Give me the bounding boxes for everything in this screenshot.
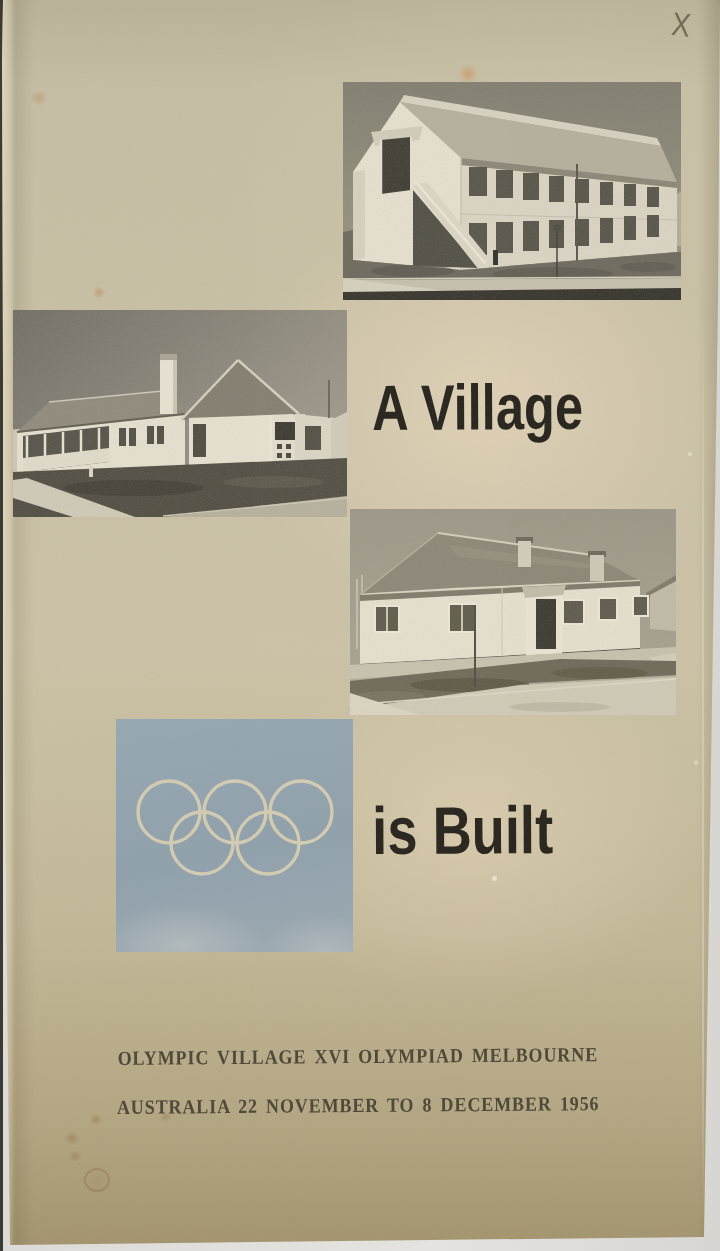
- paper-speck: [688, 452, 692, 456]
- paper-speck: [694, 760, 698, 765]
- paper-speck: [492, 876, 497, 881]
- pencil-x-mark: X: [669, 5, 692, 45]
- imprint-line-2: AUSTRALIA 22 NOVEMBER TO 8 DECEMBER 1956: [36, 1091, 681, 1119]
- photo-grain: [343, 82, 681, 300]
- booklet-cover: A Village is Built OLYMPIC VILLAGE XVI O…: [0, 0, 720, 1251]
- foxing-spot: [64, 1132, 80, 1145]
- panel-scuff: [116, 719, 353, 952]
- imprint: OLYMPIC VILLAGE XVI OLYMPIAD MELBOURNE A…: [0, 1042, 716, 1120]
- title-line-1: A Village: [372, 375, 583, 440]
- photographed-book-cover: A Village is Built OLYMPIC VILLAGE XVI O…: [0, 0, 720, 1251]
- olympic-rings-panel: [116, 719, 353, 952]
- imprint-line-1: OLYMPIC VILLAGE XVI OLYMPIAD MELBOURNE: [36, 1042, 681, 1070]
- foxing-spot: [92, 286, 106, 299]
- duplex-illustration: [350, 509, 676, 715]
- photo-duplex-house: [350, 509, 676, 715]
- photo-dormitory-block: [343, 82, 681, 300]
- foxing-spot: [458, 64, 478, 84]
- title-line-2: is Built: [372, 796, 553, 864]
- photo-grain: [13, 310, 347, 517]
- photo-chimney-house: [13, 310, 347, 517]
- foxing-spot: [68, 1150, 82, 1162]
- ring-stain: [84, 1168, 110, 1192]
- dormitory-illustration: [343, 82, 681, 300]
- foxing-spot: [30, 90, 48, 106]
- photo-grain: [350, 509, 676, 715]
- chimney-house-illustration: [13, 310, 347, 517]
